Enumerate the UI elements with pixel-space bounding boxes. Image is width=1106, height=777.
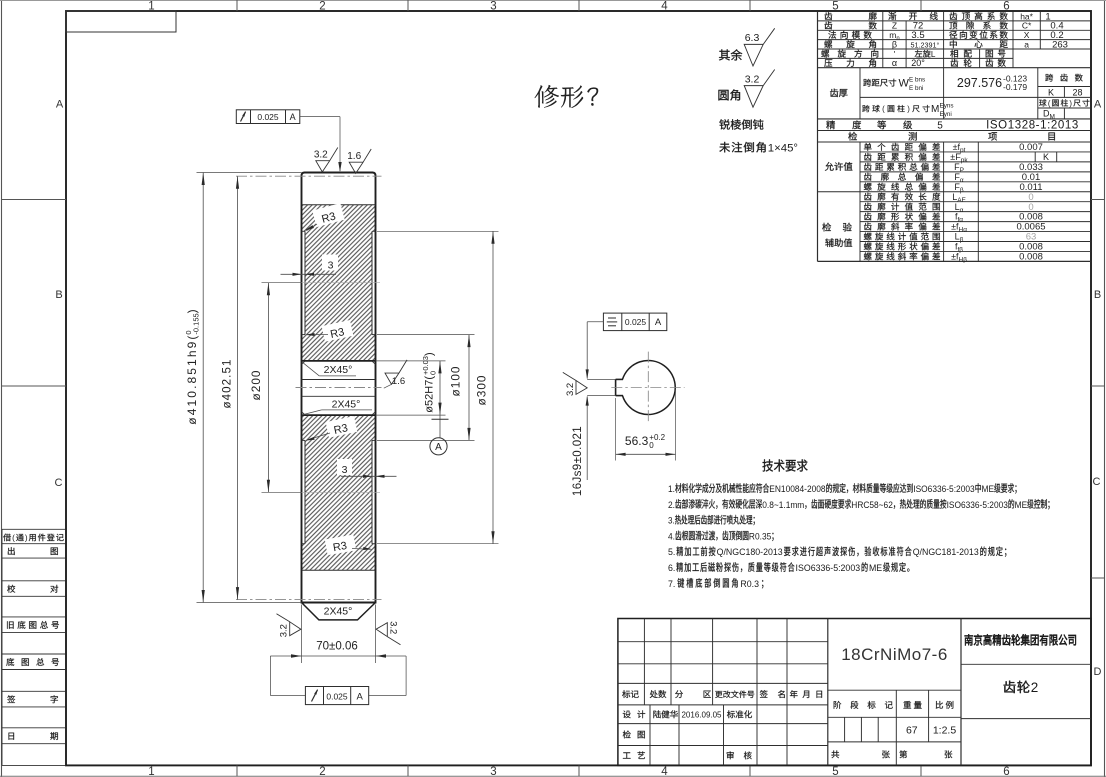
svg-text:(: ( <box>12 534 15 543</box>
svg-text:28: 28 <box>1072 88 1082 98</box>
svg-text:1:2.5: 1:2.5 <box>933 725 957 737</box>
svg-text:2: 2 <box>319 766 325 777</box>
svg-text:6: 6 <box>1003 766 1009 777</box>
svg-text:E bni: E bni <box>909 85 923 92</box>
svg-text:ME: ME <box>869 563 882 573</box>
svg-text:1.: 1. <box>668 484 675 494</box>
svg-text:B: B <box>55 289 62 301</box>
svg-text:56.3: 56.3 <box>625 434 649 448</box>
svg-text:ø402.51: ø402.51 <box>222 359 234 409</box>
svg-text:M: M <box>931 104 939 115</box>
svg-text:Hα: Hα <box>959 227 968 234</box>
svg-text:3: 3 <box>490 1 496 13</box>
svg-text:3.2: 3.2 <box>387 621 398 634</box>
svg-text:ø100: ø100 <box>449 366 463 397</box>
svg-text:0: 0 <box>428 371 437 375</box>
svg-text:K: K <box>1043 152 1049 162</box>
svg-text:A: A <box>290 112 296 122</box>
svg-text:ø200: ø200 <box>249 370 263 401</box>
svg-text:2X45°: 2X45° <box>332 398 361 410</box>
svg-text:(: ( <box>882 105 885 114</box>
svg-text:α: α <box>960 207 964 214</box>
svg-text:1.6: 1.6 <box>392 376 405 387</box>
svg-text:): ) <box>25 534 28 543</box>
svg-text:70±0.06: 70±0.06 <box>316 641 358 653</box>
svg-text:16Js9±0.021: 16Js9±0.021 <box>572 426 584 496</box>
svg-text:ø52H7(: ø52H7( <box>424 376 436 413</box>
svg-text:α: α <box>960 177 964 184</box>
svg-text:R0.3: R0.3 <box>740 579 759 589</box>
svg-text:): ) <box>185 309 199 313</box>
svg-text:W: W <box>899 78 910 90</box>
svg-text:A: A <box>435 442 442 453</box>
svg-text:3.5: 3.5 <box>911 30 924 41</box>
svg-text:3: 3 <box>328 260 334 272</box>
svg-text:A: A <box>357 691 364 702</box>
svg-text:0.008: 0.008 <box>1019 252 1043 263</box>
svg-text:R0.35: R0.35 <box>749 531 772 541</box>
svg-text:ISO1328-1:2013: ISO1328-1:2013 <box>986 119 1079 131</box>
svg-text:-0.155: -0.155 <box>191 313 200 334</box>
svg-text:L: L <box>931 50 936 59</box>
svg-text:ISO6336-5:2003: ISO6336-5:2003 <box>947 500 1009 510</box>
svg-text:18CrNiMo7-6: 18CrNiMo7-6 <box>841 645 948 664</box>
svg-text:C: C <box>1093 476 1101 488</box>
svg-text:263: 263 <box>1052 39 1068 50</box>
svg-text:5: 5 <box>937 120 943 131</box>
svg-text:E bns: E bns <box>909 77 925 84</box>
svg-text:±F: ±F <box>950 152 961 162</box>
svg-text:β: β <box>960 187 964 194</box>
svg-text:ISO6336-5:2003: ISO6336-5:2003 <box>913 484 975 494</box>
svg-text:3.2: 3.2 <box>279 624 290 637</box>
svg-text:2: 2 <box>1031 680 1039 695</box>
svg-text:Q/NGC180-2013: Q/NGC180-2013 <box>717 547 783 557</box>
svg-text:3.2: 3.2 <box>565 383 576 396</box>
svg-text:51.2391°: 51.2391° <box>910 40 939 49</box>
svg-text:K: K <box>1048 88 1054 98</box>
svg-text:(: ( <box>1048 99 1051 108</box>
svg-text:3: 3 <box>342 464 348 476</box>
svg-text:4: 4 <box>661 766 668 777</box>
svg-text:0.025: 0.025 <box>625 317 647 327</box>
svg-text:Hβ: Hβ <box>959 257 968 264</box>
svg-text:1: 1 <box>148 766 154 777</box>
svg-text:-0.179: -0.179 <box>1003 82 1027 92</box>
svg-text:A: A <box>56 98 64 110</box>
svg-text:4.: 4. <box>668 531 675 541</box>
svg-text:A: A <box>655 317 662 328</box>
svg-text:B: B <box>1094 289 1101 301</box>
svg-text:0.025: 0.025 <box>326 691 348 701</box>
svg-text:pt: pt <box>960 147 966 154</box>
svg-text:a: a <box>1024 39 1029 49</box>
svg-text:0: 0 <box>649 441 654 450</box>
svg-text:ME: ME <box>1015 500 1028 510</box>
svg-text:ISO6336-5:2003: ISO6336-5:2003 <box>796 563 861 573</box>
svg-text:β: β <box>960 237 964 244</box>
svg-text:): ) <box>907 105 910 114</box>
svg-text:): ) <box>1069 99 1072 108</box>
svg-text:C: C <box>55 477 63 489</box>
svg-text:2016.09.05: 2016.09.05 <box>681 711 722 720</box>
svg-text:6.: 6. <box>668 563 675 573</box>
svg-text:EN10084-2008: EN10084-2008 <box>769 484 826 494</box>
svg-text:α: α <box>892 58 897 68</box>
svg-text:6.3: 6.3 <box>745 32 760 44</box>
svg-text:): ) <box>424 352 436 356</box>
svg-text:0.007: 0.007 <box>1019 142 1043 153</box>
svg-text:Q/NGC181-2013: Q/NGC181-2013 <box>913 547 979 557</box>
svg-text:0.025: 0.025 <box>257 112 279 122</box>
svg-text:3.2: 3.2 <box>314 150 328 161</box>
svg-text:A: A <box>1094 98 1102 110</box>
svg-text:2X45°: 2X45° <box>324 605 353 617</box>
svg-text:5: 5 <box>832 766 838 777</box>
svg-text:4: 4 <box>661 1 668 13</box>
svg-text:Eyni: Eyni <box>940 111 952 118</box>
svg-text:3: 3 <box>490 766 496 777</box>
svg-text:D: D <box>1094 666 1102 678</box>
svg-text:ø300: ø300 <box>475 375 489 406</box>
svg-text:2X45°: 2X45° <box>324 364 353 376</box>
svg-text:20°: 20° <box>911 58 925 68</box>
svg-text:3.2: 3.2 <box>745 73 760 85</box>
svg-text:ø410.851h9(: ø410.851h9( <box>185 334 199 425</box>
svg-text:5.: 5. <box>668 547 675 557</box>
svg-text:Eyns: Eyns <box>940 103 954 110</box>
svg-text:3.: 3. <box>668 515 675 525</box>
svg-text:67: 67 <box>906 725 918 737</box>
svg-text:6: 6 <box>1003 1 1009 13</box>
svg-text:2.: 2. <box>668 500 675 510</box>
svg-text:0.8~1.1mm: 0.8~1.1mm <box>762 500 804 510</box>
svg-text:5: 5 <box>832 1 838 13</box>
svg-text:ME: ME <box>981 484 994 494</box>
svg-text:7.: 7. <box>668 579 675 589</box>
svg-text:pk: pk <box>961 157 969 164</box>
svg-text:2: 2 <box>319 1 325 13</box>
svg-text:297.576: 297.576 <box>957 76 1002 90</box>
svg-text:HRC58~62: HRC58~62 <box>851 500 893 510</box>
svg-text:1.6: 1.6 <box>347 151 361 162</box>
svg-text:P: P <box>960 167 964 174</box>
svg-text:R3: R3 <box>332 540 348 554</box>
svg-text:1×45°: 1×45° <box>768 143 798 155</box>
